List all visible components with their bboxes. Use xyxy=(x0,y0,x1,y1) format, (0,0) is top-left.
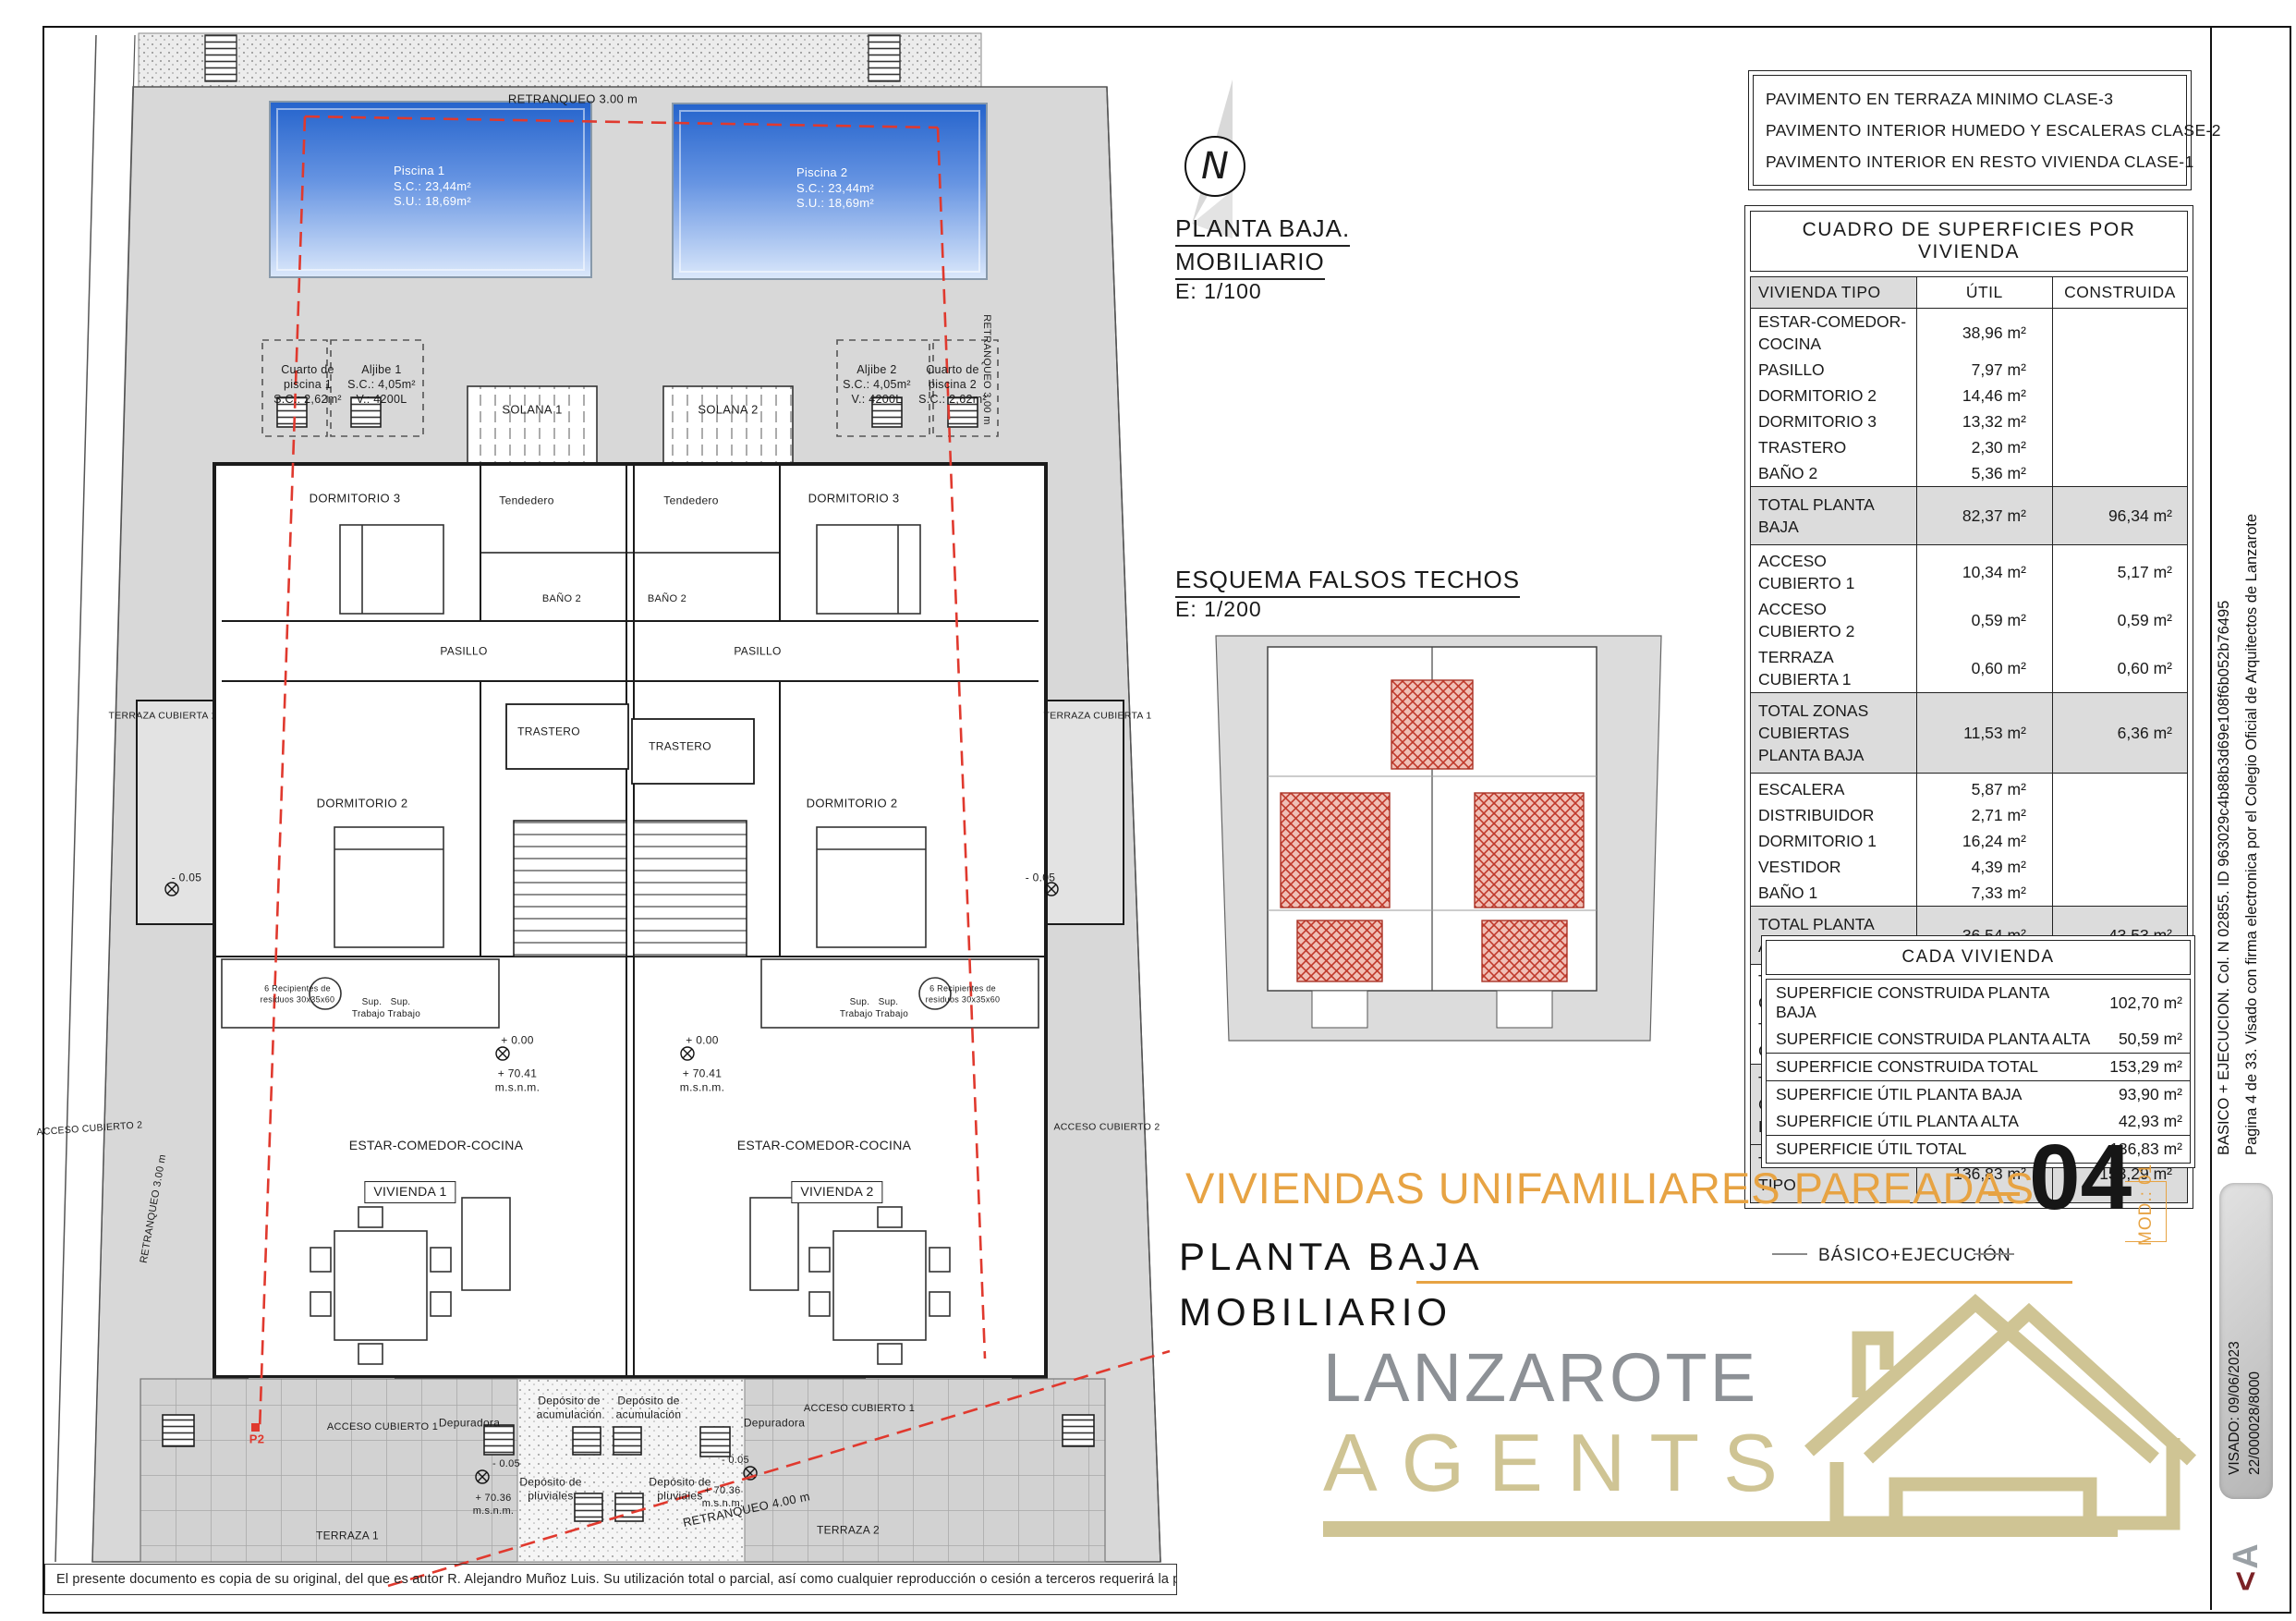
plan-label: + 70.36 m.s.n.m. xyxy=(473,1492,515,1517)
plan-label: ACCESO CUBIERTO 2 xyxy=(1054,1121,1160,1133)
plan-label: Aljibe 2 S.C.: 4,05m² V.: 4200L xyxy=(843,362,911,407)
pavimento-notes-box: PAVIMENTO EN TERRAZA MINIMO CLASE-3 PAVI… xyxy=(1748,70,2192,190)
plan-label: ESTAR-COMEDOR-COCINA xyxy=(349,1138,524,1154)
plan-label: VIVIENDA 1 xyxy=(364,1181,456,1203)
esquema-title: ESQUEMA FALSOS TECHOS xyxy=(1175,566,1520,598)
plan-label: - 0.05 xyxy=(722,1454,749,1467)
plan-title-line2: MOBILIARIO xyxy=(1175,248,1325,280)
college-logo-chevron: < xyxy=(2227,1569,2266,1591)
north-compass: N xyxy=(1184,136,1245,197)
plan-label: Piscina 2 S.C.: 23,44m² S.U.: 18,69m² xyxy=(796,165,874,212)
plan-label: SOLANA 2 xyxy=(698,403,758,419)
plan-label: - 0.05 xyxy=(172,871,202,884)
table-row: SUPERFICIE ÚTIL PLANTA BAJA93,90 m² xyxy=(1767,1081,2191,1109)
plan-label: Tendedero xyxy=(499,494,553,507)
visado-line-2: Pagina 4 de 33. Visado con firma electro… xyxy=(2243,514,2261,1155)
plan-label: VIVIENDA 2 xyxy=(791,1181,882,1203)
plan-label: + 0.00 xyxy=(686,1033,719,1047)
plan-label: DORMITORIO 2 xyxy=(807,797,898,812)
plan-label: ACCESO CUBIERTO 2 xyxy=(36,1119,143,1139)
plan-label: TERRAZA CUBIERTA 1 xyxy=(1043,710,1151,722)
plan-label: ACCESO CUBIERTO 1 xyxy=(804,1402,915,1415)
table-row: BAÑO 17,33 m² xyxy=(1751,880,2188,907)
north-letter: N xyxy=(1201,145,1229,188)
plan-scale: E: 1/100 xyxy=(1175,279,1262,304)
plan-label: Sup. Sup. Trabajo Trabajo xyxy=(352,997,420,1021)
pavimento-note: PAVIMENTO INTERIOR EN RESTO VIVIENDA CLA… xyxy=(1766,146,2174,177)
table-row: ESTAR-COMEDOR- COCINA38,96 m² xyxy=(1751,309,2188,358)
visado-badge-date: VISADO: 09/06/2023 xyxy=(2227,1341,2243,1475)
mod-label: MOD.: 01 xyxy=(2136,1164,2156,1246)
visado-line-1: BASICO + EJECUCION. Col. N 02855. ID 963… xyxy=(2216,601,2233,1155)
plan-label: TERRAZA 1 xyxy=(316,1529,379,1542)
plan-label: + 70.41 m.s.n.m. xyxy=(495,1067,540,1096)
title-dash xyxy=(1988,1192,2020,1196)
plan-label: + 0.00 xyxy=(501,1033,534,1047)
table-row: SUPERFICIE CONSTRUIDA TOTAL153,29 m² xyxy=(1767,1054,2191,1081)
phase-dash-left xyxy=(1772,1253,1807,1255)
plan-label: TERRAZA 2 xyxy=(817,1523,880,1537)
plan-label: - 0.05 xyxy=(1026,871,1056,884)
visado-badge-number: 22/000028/8000 xyxy=(2247,1371,2264,1475)
plan-label: Aljibe 1 S.C.: 4,05m² V.: 4200L xyxy=(347,362,416,407)
plan-label: RETRANQUEO 3.00 m xyxy=(508,92,638,108)
phase-dash-right xyxy=(1974,1253,2014,1255)
plan-label: DORMITORIO 3 xyxy=(808,492,900,507)
college-logo-mark: <A xyxy=(2227,1542,2266,1591)
plan-label: 6 Recipientes de residuos 30x35x60 xyxy=(261,983,335,1005)
table-row: ESCALERA5,87 m² xyxy=(1751,774,2188,803)
col-header: CONSTRUIDA xyxy=(2052,277,2187,309)
each-dwelling-title: CADA VIVIENDA xyxy=(1766,940,2191,975)
plan-label: 6 Recipientes de residuos 30x35x60 xyxy=(926,983,1001,1005)
plan-label: BAÑO 2 xyxy=(648,592,686,605)
plan-label: Depósito de acumulación xyxy=(537,1395,602,1423)
agency-logo-bar xyxy=(1323,1521,2118,1537)
pavimento-note: PAVIMENTO EN TERRAZA MINIMO CLASE-3 xyxy=(1766,83,2174,115)
col-header: ÚTIL xyxy=(1916,277,2052,309)
plan-label: BAÑO 2 xyxy=(542,592,581,605)
table-header-row: VIVIENDA TIPO ÚTIL CONSTRUIDA xyxy=(1751,277,2188,309)
plan-label: Tendedero xyxy=(663,494,718,507)
phase-label: BÁSICO+EJECUCIÓN xyxy=(1818,1246,2011,1266)
table-row: DORMITORIO 214,46 m² xyxy=(1751,383,2188,408)
plan-label: RETRANQUEO 3.00 m xyxy=(138,1153,170,1264)
plan-label: Depósito de acumulación xyxy=(616,1395,682,1423)
plan-label: PASILLO xyxy=(440,644,487,658)
plan-label: SOLANA 1 xyxy=(502,403,562,419)
table-row: DORMITORIO 116,24 m² xyxy=(1751,828,2188,854)
plan-label: Depuradora xyxy=(439,1416,500,1430)
table-row: TRASTERO2,30 m² xyxy=(1751,434,2188,460)
college-logo-letter: A xyxy=(2227,1542,2266,1568)
agency-logo-line1: LANZAROTE xyxy=(1323,1338,1758,1417)
table-row: ACCESO CUBIERTO 20,59 m²0,59 m² xyxy=(1751,596,2188,644)
plan-label: RETRANQUEO 3.00 m xyxy=(980,314,993,424)
plan-label: - 0.05 xyxy=(492,1457,520,1470)
drawing-subtitle-1: PLANTA BAJA xyxy=(1179,1235,1484,1279)
plan-label: Sup. Sup. Trabajo Trabajo xyxy=(840,997,908,1021)
table-row: TOTAL PLANTA BAJA82,37 m²96,34 m² xyxy=(1751,487,2188,545)
plan-label: Depósito de pluviales xyxy=(519,1476,581,1505)
plan-label: Piscina 1 S.C.: 23,44m² S.U.: 18,69m² xyxy=(394,164,471,210)
plan-label: Cuarto de piscina 2 S.C.: 2,62m² xyxy=(918,362,987,407)
plan-label: PASILLO xyxy=(734,644,781,658)
plan-label: DORMITORIO 2 xyxy=(317,797,408,812)
table-row: VESTIDOR4,39 m² xyxy=(1751,854,2188,880)
drawing-subtitle-2: MOBILIARIO xyxy=(1179,1290,1452,1335)
plan-label: + 70.41 m.s.n.m. xyxy=(680,1067,724,1096)
table-row: TERRAZA CUBIERTA 10,60 m²0,60 m² xyxy=(1751,644,2188,693)
copyright-disclaimer: El presente documento es copia de su ori… xyxy=(44,1564,1177,1595)
agency-logo-line2: AGENTS xyxy=(1323,1416,1802,1510)
plan-title-line1: PLANTA BAJA. xyxy=(1175,214,1350,247)
pavimento-note: PAVIMENTO INTERIOR HUMEDO Y ESCALERAS CL… xyxy=(1766,115,2174,146)
col-header: VIVIENDA TIPO xyxy=(1751,277,1917,309)
plan-label: TRASTERO xyxy=(517,725,580,738)
plan-label: Depuradora xyxy=(744,1416,805,1430)
plan-label: ESTAR-COMEDOR-COCINA xyxy=(737,1138,912,1154)
surfaces-table-title: CUADRO DE SUPERFICIES POR VIVIENDA xyxy=(1750,211,2188,272)
subtitle-underline xyxy=(1416,1281,2072,1284)
project-title: VIVIENDAS UNIFAMILIARES PAREADAS xyxy=(1185,1163,2035,1213)
table-row: TOTAL ZONAS CUBIERTAS PLANTA BAJA11,53 m… xyxy=(1751,693,2188,774)
table-row: BAÑO 25,36 m² xyxy=(1751,460,2188,487)
esquema-scale: E: 1/200 xyxy=(1175,597,1262,622)
table-row: DORMITORIO 313,32 m² xyxy=(1751,408,2188,434)
plan-label: P2 xyxy=(249,1432,265,1448)
table-row: DISTRIBUIDOR2,71 m² xyxy=(1751,802,2188,828)
table-row: SUPERFICIE CONSTRUIDA PLANTA BAJA102,70 … xyxy=(1767,980,2191,1027)
table-row: ACCESO CUBIERTO 110,34 m²5,17 m² xyxy=(1751,545,2188,597)
table-row: PASILLO7,97 m² xyxy=(1751,357,2188,383)
plan-label: ACCESO CUBIERTO 1 xyxy=(327,1420,438,1433)
plan-label: Cuarto de piscina 1 S.C.: 2,62m² xyxy=(273,362,342,407)
sheet-number: 04 xyxy=(2029,1135,2132,1220)
table-row: SUPERFICIE CONSTRUIDA PLANTA ALTA50,59 m… xyxy=(1767,1026,2191,1054)
plan-label: TERRAZA CUBIERTA 1 xyxy=(108,710,216,722)
plan-label: TRASTERO xyxy=(649,739,711,753)
plan-label: DORMITORIO 3 xyxy=(310,492,401,507)
